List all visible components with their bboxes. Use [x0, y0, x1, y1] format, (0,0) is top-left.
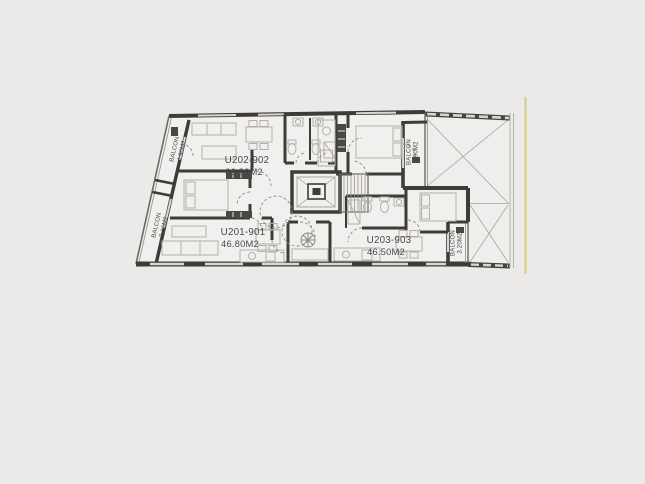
- unit-area-u202: 66.80M2: [225, 166, 263, 177]
- unit-label-u203: U203-903: [367, 235, 412, 246]
- svg-text:3.20M2: 3.20M2: [458, 232, 464, 254]
- unit-label-u202: U202-902: [225, 155, 270, 166]
- unit-label-u201: U201-901: [221, 227, 266, 238]
- unit-area-u201: 46.80M2: [221, 238, 259, 249]
- ac-unit: [171, 127, 178, 136]
- floor-plan-canvas: U202-902 66.80M2 U201-901 46.80M2 U203-9…: [0, 0, 645, 484]
- floor-plan-svg: U202-902 66.80M2 U201-901 46.80M2 U203-9…: [0, 0, 645, 484]
- unit-area-u203: 46.50M2: [367, 246, 405, 257]
- service-duct: [337, 124, 346, 152]
- ac-unit: [456, 227, 464, 233]
- balcony-label-bottom-right: BALCON 3.20M2: [451, 230, 464, 256]
- wardrobe: [226, 211, 252, 218]
- svg-text:BALCON: BALCON: [451, 230, 457, 256]
- svg-text:3.90M2: 3.90M2: [414, 141, 420, 163]
- svg-text:BALCON: BALCON: [407, 139, 413, 165]
- balcony-label-top-right: BALCON 3.90M2: [407, 139, 420, 165]
